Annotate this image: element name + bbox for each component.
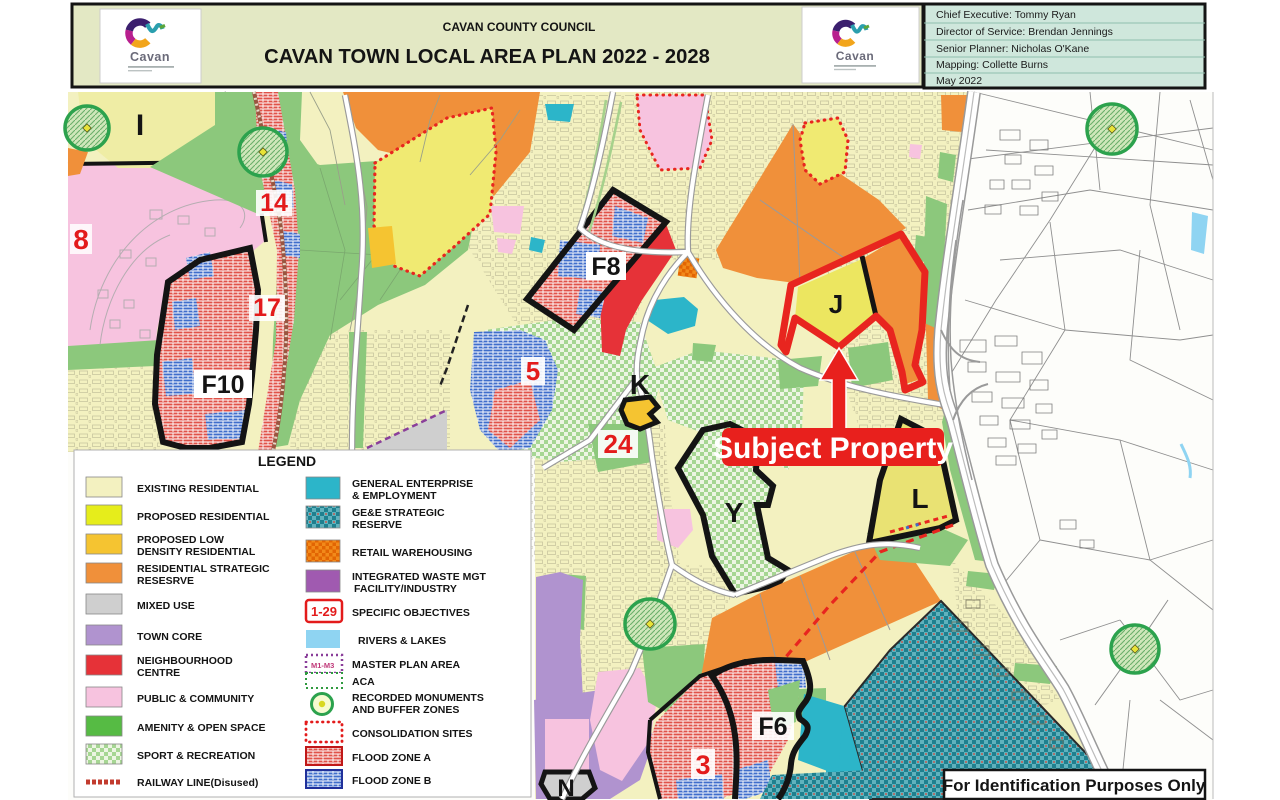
svg-text:8: 8 <box>73 224 89 255</box>
svg-text:17: 17 <box>253 294 281 322</box>
svg-text:RIVERS & LAKES: RIVERS & LAKES <box>358 635 446 647</box>
svg-text:MIXED USE: MIXED USE <box>137 600 195 612</box>
svg-text:FACILITY/INDUSTRY: FACILITY/INDUSTRY <box>354 583 457 595</box>
svg-text:& EMPLOYMENT: & EMPLOYMENT <box>352 490 437 502</box>
svg-text:J: J <box>829 289 843 319</box>
svg-text:Senior Planner: Nicholas O'Kan: Senior Planner: Nicholas O'Kane <box>936 43 1089 55</box>
svg-text:DENSITY RESIDENTIAL: DENSITY RESIDENTIAL <box>137 546 256 558</box>
svg-text:RESIDENTIAL STRATEGIC: RESIDENTIAL STRATEGIC <box>137 563 270 575</box>
svg-text:Cavan: Cavan <box>836 49 875 63</box>
svg-text:N: N <box>557 775 574 800</box>
svg-text:CAVAN COUNTY COUNCIL: CAVAN COUNTY COUNCIL <box>443 20 596 34</box>
svg-text:GE&E STRATEGIC: GE&E STRATEGIC <box>352 507 445 519</box>
svg-text:K: K <box>630 369 650 400</box>
svg-text:PUBLIC & COMMUNITY: PUBLIC & COMMUNITY <box>137 693 254 705</box>
svg-text:Director of Service: Brendan J: Director of Service: Brendan Jennings <box>936 26 1113 38</box>
svg-text:AND BUFFER ZONES: AND BUFFER ZONES <box>352 704 459 716</box>
svg-text:RAILWAY LINE(Disused): RAILWAY LINE(Disused) <box>137 777 258 789</box>
svg-text:CENTRE: CENTRE <box>137 667 180 679</box>
svg-text:Y: Y <box>725 497 744 528</box>
svg-text:F6: F6 <box>758 713 787 741</box>
svg-text:CONSOLIDATION SITES: CONSOLIDATION SITES <box>352 728 473 740</box>
svg-text:Cavan: Cavan <box>130 50 170 64</box>
svg-text:I: I <box>136 109 144 142</box>
svg-text:INTEGRATED WASTE MGT: INTEGRATED WASTE MGT <box>352 571 487 583</box>
svg-text:FLOOD ZONE A: FLOOD ZONE A <box>352 752 431 764</box>
svg-text:RETAIL WAREHOUSING: RETAIL WAREHOUSING <box>352 547 472 559</box>
svg-text:5: 5 <box>526 356 540 386</box>
svg-text:SPORT & RECREATION: SPORT & RECREATION <box>137 750 255 762</box>
svg-text:Mapping: Collette Burns: Mapping: Collette Burns <box>936 59 1048 71</box>
svg-text:SPECIFIC OBJECTIVES: SPECIFIC OBJECTIVES <box>352 607 470 619</box>
svg-text:F10: F10 <box>201 371 244 399</box>
svg-text:AMENITY & OPEN SPACE: AMENITY & OPEN SPACE <box>137 722 266 734</box>
svg-text:RESESRVE: RESESRVE <box>137 575 194 587</box>
svg-text:Subject Property: Subject Property <box>713 432 953 465</box>
svg-text:For Identification Purposes On: For Identification Purposes Only <box>943 776 1206 795</box>
svg-text:RESERVE: RESERVE <box>352 519 402 531</box>
svg-text:24: 24 <box>604 429 633 459</box>
svg-text:PROPOSED RESIDENTIAL: PROPOSED RESIDENTIAL <box>137 511 270 523</box>
svg-text:FLOOD ZONE B: FLOOD ZONE B <box>352 775 432 787</box>
svg-text:NEIGHBOURHOOD: NEIGHBOURHOOD <box>137 655 233 667</box>
svg-text:TOWN CORE: TOWN CORE <box>137 631 202 643</box>
svg-text:MASTER PLAN AREA: MASTER PLAN AREA <box>352 659 461 671</box>
svg-text:ACA: ACA <box>352 676 375 688</box>
svg-text:LEGEND: LEGEND <box>258 453 316 469</box>
svg-text:F8: F8 <box>591 253 620 281</box>
svg-text:RECORDED MONUMENTS: RECORDED MONUMENTS <box>352 692 484 704</box>
svg-text:PROPOSED LOW: PROPOSED LOW <box>137 534 224 546</box>
svg-text:EXISTING RESIDENTIAL: EXISTING RESIDENTIAL <box>137 483 260 495</box>
svg-text:L: L <box>911 483 928 514</box>
svg-text:14: 14 <box>260 189 288 217</box>
svg-text:May 2022: May 2022 <box>936 75 982 87</box>
svg-text:GENERAL ENTERPRISE: GENERAL ENTERPRISE <box>352 478 473 490</box>
svg-text:M1-M3: M1-M3 <box>311 661 334 670</box>
svg-text:CAVAN TOWN LOCAL AREA PLAN 202: CAVAN TOWN LOCAL AREA PLAN 2022 - 2028 <box>264 46 710 68</box>
svg-text:3: 3 <box>695 750 710 780</box>
svg-text:Chief Executive: Tommy Ryan: Chief Executive: Tommy Ryan <box>936 9 1076 21</box>
svg-text:1-29: 1-29 <box>311 604 337 619</box>
